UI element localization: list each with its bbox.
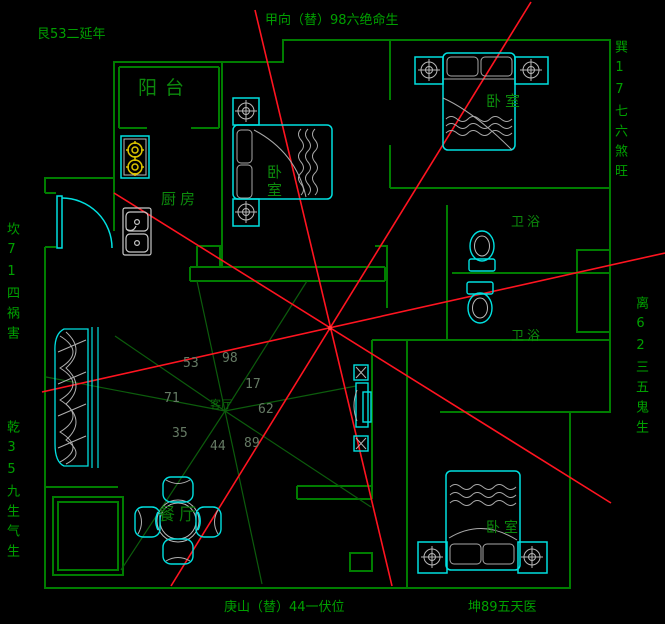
sector-number-71: 71 (164, 392, 180, 405)
bed-top-right-symbol (415, 53, 548, 150)
bedroom-divider-wall (390, 40, 610, 188)
stair-closet-outer (53, 497, 123, 575)
bagua-rays (46, 281, 371, 584)
sink-symbol (123, 208, 151, 255)
stair-closet-inner (58, 502, 118, 570)
floorplan-svg (0, 0, 665, 624)
boundary-label-top-right: 巽17七六煞旺 (613, 40, 626, 220)
switch-symbol (354, 436, 368, 451)
toilet-upper-symbol (469, 231, 495, 271)
room-label-kitchen: 厨房 (161, 192, 199, 207)
floorplan-canvas: 艮53二延年 甲向（替）98六绝命生 巽17七六煞旺 坎71四祸害 乾35九生气… (0, 0, 665, 624)
room-label-dining: 餐厅 (158, 507, 200, 524)
room-label-bedroom-top-right: 卧室 (486, 94, 524, 109)
lamp-symbol (421, 546, 543, 568)
boundary-label-right: 离62三五鬼生 (634, 296, 647, 466)
sector-number-98: 98 (222, 352, 238, 365)
bedroom-living-wall (190, 246, 387, 281)
tv-symbol (354, 383, 371, 427)
room-label-bedroom-middle: 卧室 (266, 164, 281, 210)
sofa-symbol (55, 327, 98, 468)
room-label-bath-upper: 卫浴 (511, 216, 543, 229)
burner-icon (126, 141, 144, 176)
sector-number-62: 62 (258, 403, 274, 416)
door-panel (57, 196, 62, 248)
bed-bottom-right-symbol (418, 471, 547, 573)
boundary-label-bottom-right: 坤89五天医 (468, 601, 537, 614)
entry-door (57, 196, 112, 248)
stove-symbol (121, 136, 149, 178)
boundary-label-bottom-center: 庚山（替）44一伏位 (224, 601, 345, 614)
boundary-label-left-lower: 乾35九生气生 (5, 420, 18, 590)
door-swing-arc (62, 198, 112, 248)
bed-middle-symbol (233, 98, 332, 226)
red-line-se (114, 193, 611, 503)
room-label-living: 客厅 (210, 399, 232, 410)
boundary-label-top-left: 艮53二延年 (37, 28, 106, 41)
sector-number-44: 44 (210, 440, 226, 453)
sector-number-89: 89 (244, 437, 260, 450)
sector-number-17: 17 (245, 378, 261, 391)
ray-98 (197, 281, 225, 411)
room-label-bath-lower: 卫浴 (511, 330, 543, 343)
lamp-symbol (235, 100, 257, 223)
small-column (350, 553, 372, 571)
red-center-point (328, 326, 332, 330)
sector-number-35: 35 (172, 427, 188, 440)
sofa-cushions (58, 332, 86, 464)
ray-17 (225, 281, 307, 411)
switch-symbol (354, 365, 368, 380)
room-label-balcony: 阳台 (138, 79, 192, 98)
toilet-lower-symbol (467, 282, 493, 323)
entry-wall-stubs (45, 178, 114, 247)
lamp-symbol (418, 59, 542, 81)
boundary-label-top-center: 甲向（替）98六绝命生 (265, 14, 399, 27)
boundary-label-left-upper: 坎71四祸害 (5, 222, 18, 392)
sector-number-53: 53 (183, 357, 199, 370)
room-label-bedroom-bottom-right: 卧室 (486, 521, 522, 535)
outer-wall-right (570, 332, 610, 412)
shaft-wall (577, 250, 610, 332)
